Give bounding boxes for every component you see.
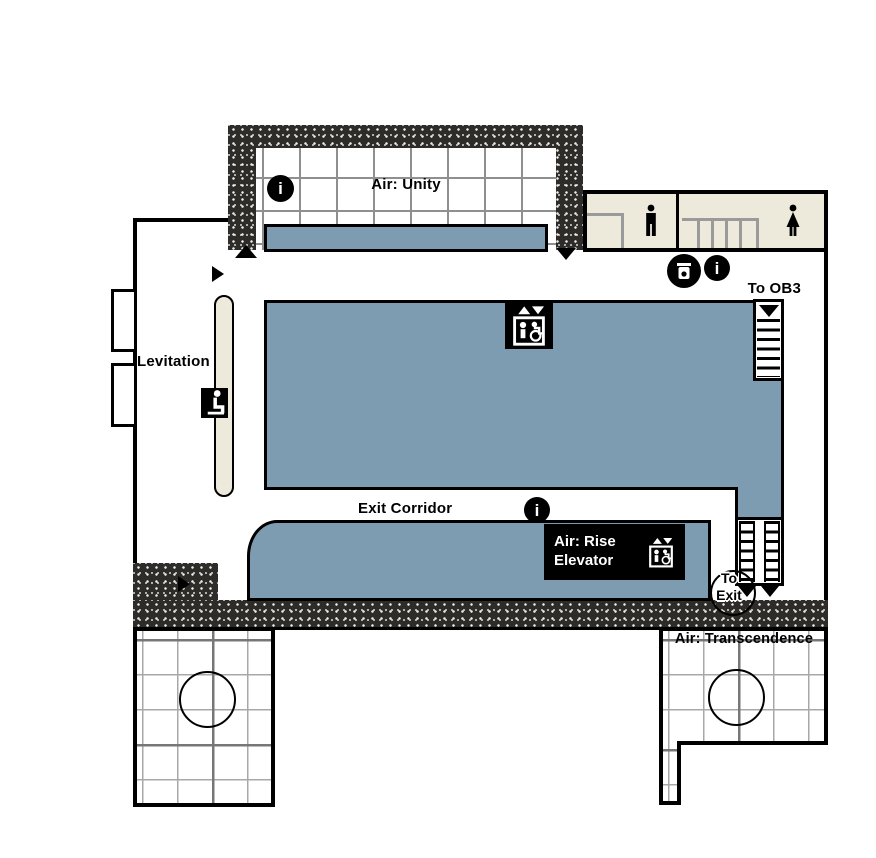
stair-treads <box>757 319 780 377</box>
stall-wall <box>682 218 758 221</box>
info-glyph: i <box>715 260 720 277</box>
restroom-partition <box>676 194 679 248</box>
trash-icon <box>667 254 701 288</box>
room-air-transcendence-strip <box>659 741 681 805</box>
stall-wall <box>697 218 700 248</box>
entrance-arrow-up-icon <box>235 245 257 258</box>
stall-wall <box>756 218 759 248</box>
column-circle <box>179 671 236 728</box>
ob3-down-arrow-icon <box>759 305 779 317</box>
entrance-arrow-down-icon <box>556 248 576 260</box>
air-rise-elevator-box: Air: Rise Elevator <box>544 524 685 580</box>
elevator-icon <box>643 534 679 570</box>
womens-restroom-icon <box>784 204 802 240</box>
air-rise-line2: Elevator <box>554 552 616 571</box>
to-exit-line2: Exit <box>703 587 755 604</box>
stairs-down-arrow-icon <box>761 586 779 597</box>
room-label-levitation: Levitation <box>137 353 210 370</box>
direction-arrow-right-icon <box>178 576 190 592</box>
stall-wall <box>725 218 728 248</box>
floor-map: Air: Transcendence i Air: Unity <box>0 0 876 858</box>
stall-wall <box>739 218 742 248</box>
elevator-icon <box>505 301 553 349</box>
air-rise-label: Air: Rise Elevator <box>554 533 616 571</box>
central-exhibit-extension <box>735 487 784 520</box>
stall-wall <box>711 218 714 248</box>
restroom-wall <box>621 213 624 248</box>
wall-niche <box>111 289 137 352</box>
air-unity-bench <box>264 224 548 252</box>
direction-arrow-right-icon <box>212 266 224 282</box>
restrooms <box>583 190 828 252</box>
info-icon: i <box>704 255 730 281</box>
mens-restroom-icon <box>643 204 659 240</box>
wall-niche <box>111 363 137 427</box>
room-label-air-transcendence: Air: Transcendence <box>660 631 828 647</box>
restroom-wall <box>587 213 624 216</box>
tiled-area-southwest <box>133 627 275 807</box>
sign-to-ob3: To OB3 <box>733 280 801 297</box>
to-exit-line1: To <box>703 570 755 587</box>
column-circle <box>708 669 765 726</box>
room-label-air-unity: Air: Unity <box>256 176 556 193</box>
room-label-exit-corridor: Exit Corridor <box>358 500 452 517</box>
stair-flight-right <box>764 521 780 582</box>
info-glyph: i <box>535 502 540 519</box>
sign-to-exit: To Exit <box>703 570 755 604</box>
seated-lift-icon <box>201 388 228 418</box>
air-rise-line1: Air: Rise <box>554 533 616 552</box>
